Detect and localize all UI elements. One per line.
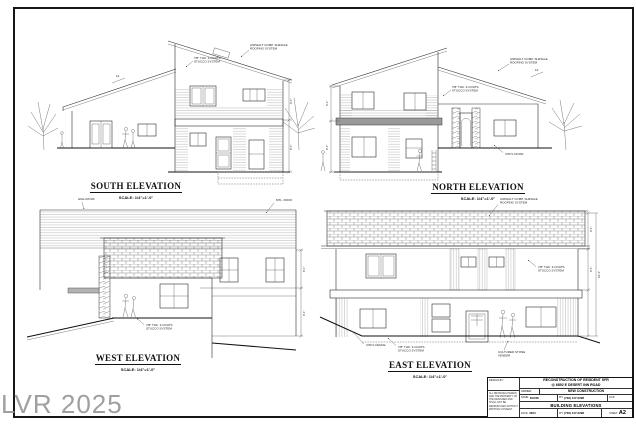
dimension-text: 9'-1" — [302, 310, 306, 316]
title-block-firm-column: DESIGN BY: ALL DRAWINGS HEREIN ARE THE P… — [488, 378, 520, 417]
svg-text:STUCCO SYSTEM: STUCCO SYSTEM — [146, 327, 172, 331]
svg-text:VINYL FENCE: VINYL FENCE — [366, 343, 386, 347]
dimension-text: 8'-1" — [302, 266, 306, 272]
shingle-roof — [321, 211, 590, 249]
dimension-text: 8'-1" — [289, 144, 293, 150]
owner-label: OWNER: — [520, 389, 540, 394]
dimension-text: 18'-2" — [597, 271, 601, 278]
project-name: RECONSTRUCTION OF RESIDENT SFR @ 6892 E … — [520, 378, 632, 389]
dimension-text: 8'-1" — [325, 144, 329, 150]
sheet-number-label: SHEET: — [609, 412, 618, 415]
svg-text:ROOFING SYSTEM: ROOFING SYSTEM — [500, 201, 528, 205]
slope-marker: 12 — [116, 74, 120, 78]
firm-label: DESIGN BY: — [488, 378, 519, 391]
elevation-scale: SCALE: 1/4"=1'-0" — [408, 196, 548, 201]
phone-value: (702) 417-0298 — [564, 411, 584, 415]
elevation-scale: SCALE: 1/4"=1'-0" — [360, 374, 500, 379]
watermark: LVR 2025 — [1, 389, 123, 420]
east-elevation-label: EAST ELEVATION SCALE: 1/4"=1'-0" — [360, 355, 500, 379]
owner-value: NEW CONSTRUCTION — [540, 389, 632, 393]
firm-note: ALL DRAWINGS HEREIN ARE THE PROPERTY OF … — [488, 391, 519, 417]
elevation-title: WEST ELEVATION — [95, 353, 181, 365]
sheet-title: BUILDING ELEVATIONS — [520, 402, 632, 409]
title-block: DESIGN BY: ALL DRAWINGS HEREIN ARE THE P… — [487, 377, 633, 418]
elevation-scale: SCALE: 1/4"=1'-0" — [68, 367, 208, 372]
name-label: NAME: — [521, 396, 529, 399]
license-label: LIC#: — [609, 396, 615, 399]
dimension-text: 8'-1" — [589, 266, 593, 272]
sheet-number: A2 — [619, 410, 626, 416]
date-label: DATE: — [521, 412, 528, 415]
svg-text:STUCCO SYSTEM: STUCCO SYSTEM — [194, 60, 220, 64]
svg-text:ROOFING SYSTEM: ROOFING SYSTEM — [510, 61, 538, 65]
phone-label: PH: — [559, 412, 563, 415]
west-elevation-label: WEST ELEVATION SCALE: 1/4"=1'-0" — [68, 348, 208, 372]
dimension-text: 9'-1" — [289, 98, 293, 104]
svg-text:STUCCO SYSTEM: STUCCO SYSTEM — [452, 89, 478, 93]
dimension-text: 9'-1" — [325, 100, 329, 106]
phone-value: (702) 417-0298 — [564, 396, 584, 400]
svg-text:STUCCO SYSTEM: STUCCO SYSTEM — [398, 349, 424, 353]
name-value: DAVID — [530, 396, 539, 400]
elevation-title: SOUTH ELEVATION — [90, 181, 182, 193]
date-value: 2024 — [529, 411, 535, 415]
south-elevation-label: SOUTH ELEVATION SCALE: 1/4"=1'-0" — [66, 176, 206, 200]
project-line2: @ 6892 E DESERT INN ROAD — [552, 383, 601, 388]
elevation-title: EAST ELEVATION — [388, 360, 472, 372]
shingle-roof — [100, 238, 225, 278]
svg-text:MTL. ROOF: MTL. ROOF — [276, 198, 293, 202]
drawing-sheet: 9'-1" 8'-1" 12 7/8" THK. 3-COATS STUCCO … — [0, 0, 636, 424]
elevation-scale: SCALE: 1/4"=1'-0" — [66, 195, 206, 200]
elevation-title: NORTH ELEVATION — [431, 182, 525, 194]
svg-text:STUCCO SYSTEM: STUCCO SYSTEM — [538, 269, 564, 273]
slope-marker: 12 — [535, 68, 539, 72]
phone-label: PH: — [559, 396, 563, 399]
svg-text:VINYL DOOR: VINYL DOOR — [505, 152, 524, 156]
svg-text:ROOFING SYSTEM: ROOFING SYSTEM — [250, 47, 278, 51]
dimension-text: 9'-1" — [589, 226, 593, 232]
north-elevation-label: NORTH ELEVATION SCALE: 1/4"=1'-0" — [408, 177, 548, 201]
